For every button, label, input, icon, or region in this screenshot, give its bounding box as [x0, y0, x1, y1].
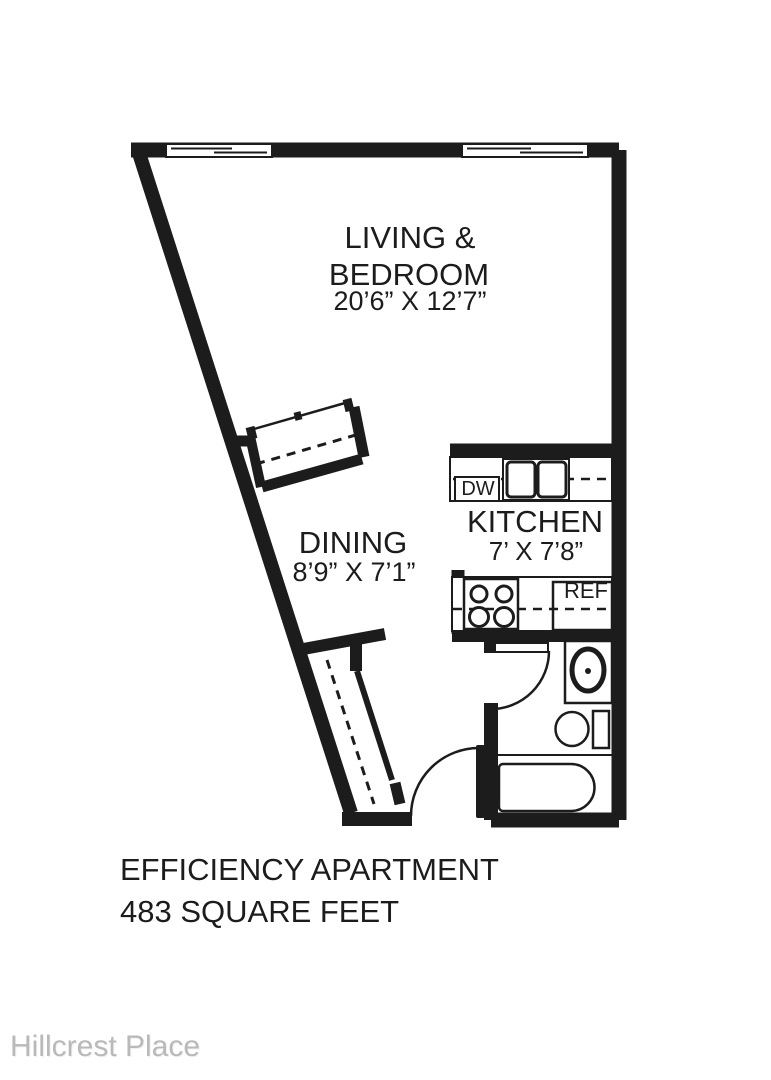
- dining-room-label: DINING: [299, 527, 408, 558]
- dining-room-dimensions: 8’9” X 7’1”: [292, 559, 415, 586]
- property-name-watermark: Hillcrest Place: [10, 1032, 200, 1062]
- bathtub: [499, 764, 594, 811]
- kitchen-dimensions: 7’ X 7’8”: [489, 538, 583, 564]
- apartment-type-label: EFFICIENCY APARTMENT: [120, 854, 499, 885]
- upper-closet: [231, 399, 367, 491]
- dishwasher-label: DW: [461, 479, 494, 499]
- lower-closet: [298, 634, 400, 804]
- toilet: [556, 711, 610, 748]
- living-room-label-line1: LIVING &: [345, 222, 476, 253]
- floor-plan-page: LIVING & BEDROOM 20’6” X 12’7” DINING 8’…: [0, 0, 771, 1080]
- window-1: [166, 144, 272, 157]
- entry-door: [411, 745, 485, 818]
- refrigerator-label: REF: [564, 580, 608, 602]
- bathroom-door: [484, 642, 549, 709]
- bathroom-sink: [565, 641, 612, 703]
- kitchen-sink: [503, 459, 569, 500]
- kitchen-label: KITCHEN: [467, 506, 603, 537]
- living-room-dimensions: 20’6” X 12’7”: [333, 288, 486, 315]
- square-footage-label: 483 SQUARE FEET: [120, 896, 399, 927]
- window-2: [462, 144, 588, 157]
